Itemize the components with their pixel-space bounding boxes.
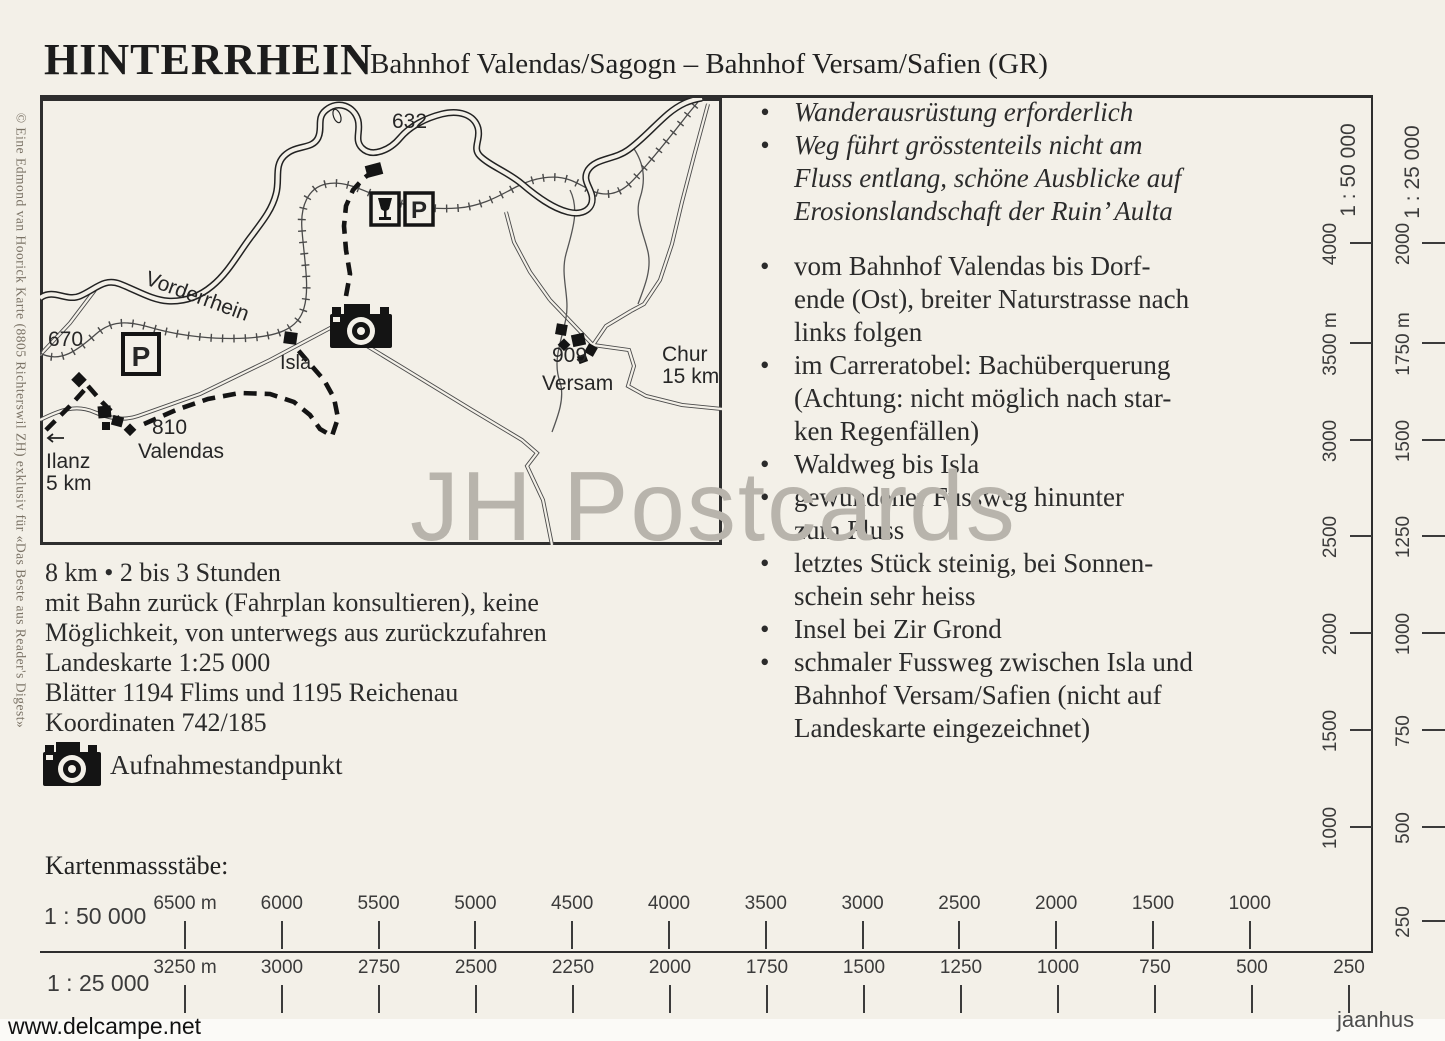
camera-legend-icon [42,740,106,792]
map-label-isla: Isla [280,352,312,374]
scale-label-h-25000: 1 : 25 000 [47,970,149,997]
scale-tick [1057,985,1059,1013]
info-line: Blätter 1194 Flims und 1195 Reichenau [45,678,705,708]
bullet-icon: • [756,96,794,129]
scale-tick-label: 6000 [237,893,327,915]
scale-tick-label: 1000 [1393,589,1415,679]
scale-tick [1422,342,1445,344]
scale-tick-label: 4500 [527,893,617,915]
watermark-bottom-left: www.delcampe.net [8,1013,201,1040]
scale-tick-label: 1750 [722,957,812,979]
info-block: 8 km • 2 bis 3 Stundenmit Bahn zurück (F… [45,558,705,738]
bullet-icon: • [756,129,794,228]
note-item: •vom Bahnhof Valendas bis Dorf- ende (Os… [756,250,1316,349]
map-label-ilanz-dist: 5 km [46,472,92,495]
scale-tick-label: 3250 m [140,957,230,979]
map-label-810: 810 [152,416,187,439]
scale-tick-label: 1750 m [1393,299,1415,389]
scale-tick-label: 1250 [1393,492,1415,582]
scale-tick-label: 2000 [1393,199,1415,289]
scale-tick-label: 3500 [721,893,811,915]
scale-tick [378,921,380,949]
scale-tick-label: 2500 [1320,492,1342,582]
scale-tick [1350,729,1372,731]
watermark-center: JH Postcards [410,450,1017,563]
scale-tick-label: 1500 [1393,396,1415,486]
scale-tick [572,985,574,1013]
note-text: Wanderausrüstung erforderlich [794,96,1133,129]
scale-tick [1154,985,1156,1013]
svg-text:P: P [132,341,151,372]
scale-tick-label: 2250 [528,957,618,979]
scale-tick [1350,439,1372,441]
scale-tick [1350,826,1372,828]
scale-tick [1422,920,1445,922]
note-text: schmaler Fussweg zwischen Isla und Bahnh… [794,646,1193,745]
map-label-670: 670 [48,328,83,351]
scale-tick [184,921,186,949]
scale-tick [184,985,186,1013]
scale-tick-label: 3000 [818,893,908,915]
scale-tick [1422,729,1445,731]
bottom-strip [0,1019,1445,1041]
notes-list: •Wanderausrüstung erforderlich•Weg führt… [756,96,1316,745]
scale-tick [1251,985,1253,1013]
scales-heading: Kartenmassstäbe: [45,851,228,881]
scale-tick [1152,921,1154,949]
scale-tick-label: 3000 [1320,396,1342,486]
scale-tick [1422,826,1445,828]
scale-tick [669,985,671,1013]
note-item: •im Carreratobel: Bachüberquerung (Achtu… [756,349,1316,448]
scale-tick [668,921,670,949]
map-label-chur-dist: 15 km [662,365,719,388]
scale-tick [766,985,768,1013]
scale-tick-label: 3500 m [1320,299,1342,389]
note-text: im Carreratobel: Bachüberquerung (Achtun… [794,349,1171,448]
scale-tick-label: 2000 [625,957,715,979]
scale-tick-label: 1000 [1205,893,1295,915]
scale-tick-label: 4000 [1320,199,1342,289]
scale-tick [1422,439,1445,441]
scale-tick-label: 500 [1207,957,1297,979]
bullet-icon: • [756,613,794,646]
scale-tick [1350,535,1372,537]
copyright-credit: © Eine Edmond van Hoorick Karte (8805 Ri… [12,106,29,736]
note-text: vom Bahnhof Valendas bis Dorf- ende (Ost… [794,250,1189,349]
scale-tick-label: 250 [1304,957,1394,979]
scale-tick [281,921,283,949]
note-item: •Insel bei Zir Grond [756,613,1316,646]
scale-tick-label: 250 [1393,877,1415,967]
scale-tick-label: 6500 m [140,893,230,915]
scale-tick-label: 1250 [916,957,1006,979]
scale-tick [1055,921,1057,949]
restaurant-icon [371,193,399,225]
scale-tick-label: 2000 [1320,589,1342,679]
scale-tick [475,985,477,1013]
scale-tick [960,985,962,1013]
scale-tick-label: 1500 [1108,893,1198,915]
scale-tick [1350,342,1372,344]
note-item: •schmaler Fussweg zwischen Isla und Bahn… [756,646,1316,745]
scale-tick [1350,242,1372,244]
scale-tick-label: 1500 [1320,686,1342,776]
page-title: HINTERRHEIN [44,34,373,85]
map-label-ilanz: Ilanz [46,450,90,473]
scale-tick-label: 3000 [237,957,327,979]
vertical-scale-line-50000 [1371,95,1373,953]
map-label-versam: Versam [542,372,613,395]
scale-tick [1249,921,1251,949]
map-label-valendas: Valendas [138,440,224,463]
postcard: HINTERRHEIN Bahnhof Valendas/Sagogn – Ba… [0,0,1445,1041]
parking-icon-top: P [405,193,433,225]
scale-tick [474,921,476,949]
scale-tick [1422,535,1445,537]
scale-tick [958,921,960,949]
camera-icon [330,304,392,348]
scale-tick [765,921,767,949]
scale-tick-label: 1000 [1320,783,1342,873]
scale-tick-label: 1500 [819,957,909,979]
scale-tick-label: 4000 [624,893,714,915]
note-text: Insel bei Zir Grond [794,613,1002,646]
scale-tick-label: 2500 [431,957,521,979]
scale-tick-label: 1000 [1013,957,1103,979]
scale-tick [863,985,865,1013]
scale-label-h-50000: 1 : 50 000 [44,903,146,930]
note-text: Weg führt grösstenteils nicht am Fluss e… [794,129,1181,228]
bullet-icon: • [756,646,794,745]
map-label-909: 909 [552,344,587,367]
scale-tick-label: 5000 [430,893,520,915]
bullet-icon: • [756,250,794,349]
scale-tick [281,985,283,1013]
scale-tick-label: 500 [1393,783,1415,873]
scale-tick [378,985,380,1013]
parking-icon: P [123,334,159,374]
info-line: Möglichkeit, von unterwegs aus zurückzuf… [45,618,705,648]
scale-tick [1350,632,1372,634]
camera-legend-label: Aufnahmestandpunkt [110,750,342,781]
scale-tick-label: 2750 [334,957,424,979]
scale-tick-label: 5500 [334,893,424,915]
watermark-bottom-right: jaanhus [1337,1007,1414,1033]
info-line: mit Bahn zurück (Fahrplan konsultieren),… [45,588,705,618]
note-item: •Wanderausrüstung erforderlich [756,96,1316,129]
scale-tick [862,921,864,949]
scale-tick-label: 750 [1110,957,1200,979]
scale-tick-label: 2500 [914,893,1004,915]
page-subtitle: Bahnhof Valendas/Sagogn – Bahnhof Versam… [370,48,1048,81]
scale-tick [571,921,573,949]
svg-text:P: P [411,197,427,224]
scale-tick [1422,242,1445,244]
scale-tick-label: 750 [1393,686,1415,776]
ilanz-arrow-icon [48,434,64,442]
map-label-chur: Chur [662,343,708,366]
scale-tick-label: 2000 [1011,893,1101,915]
map-label-632: 632 [392,110,427,133]
info-line: Landeskarte 1:25 000 [45,648,705,678]
bullet-icon: • [756,349,794,448]
scale-tick [1422,632,1445,634]
note-item: •Weg führt grösstenteils nicht am Fluss … [756,129,1316,228]
info-line: Koordinaten 742/185 [45,708,705,738]
scale-baseline-50000 [40,951,1373,953]
